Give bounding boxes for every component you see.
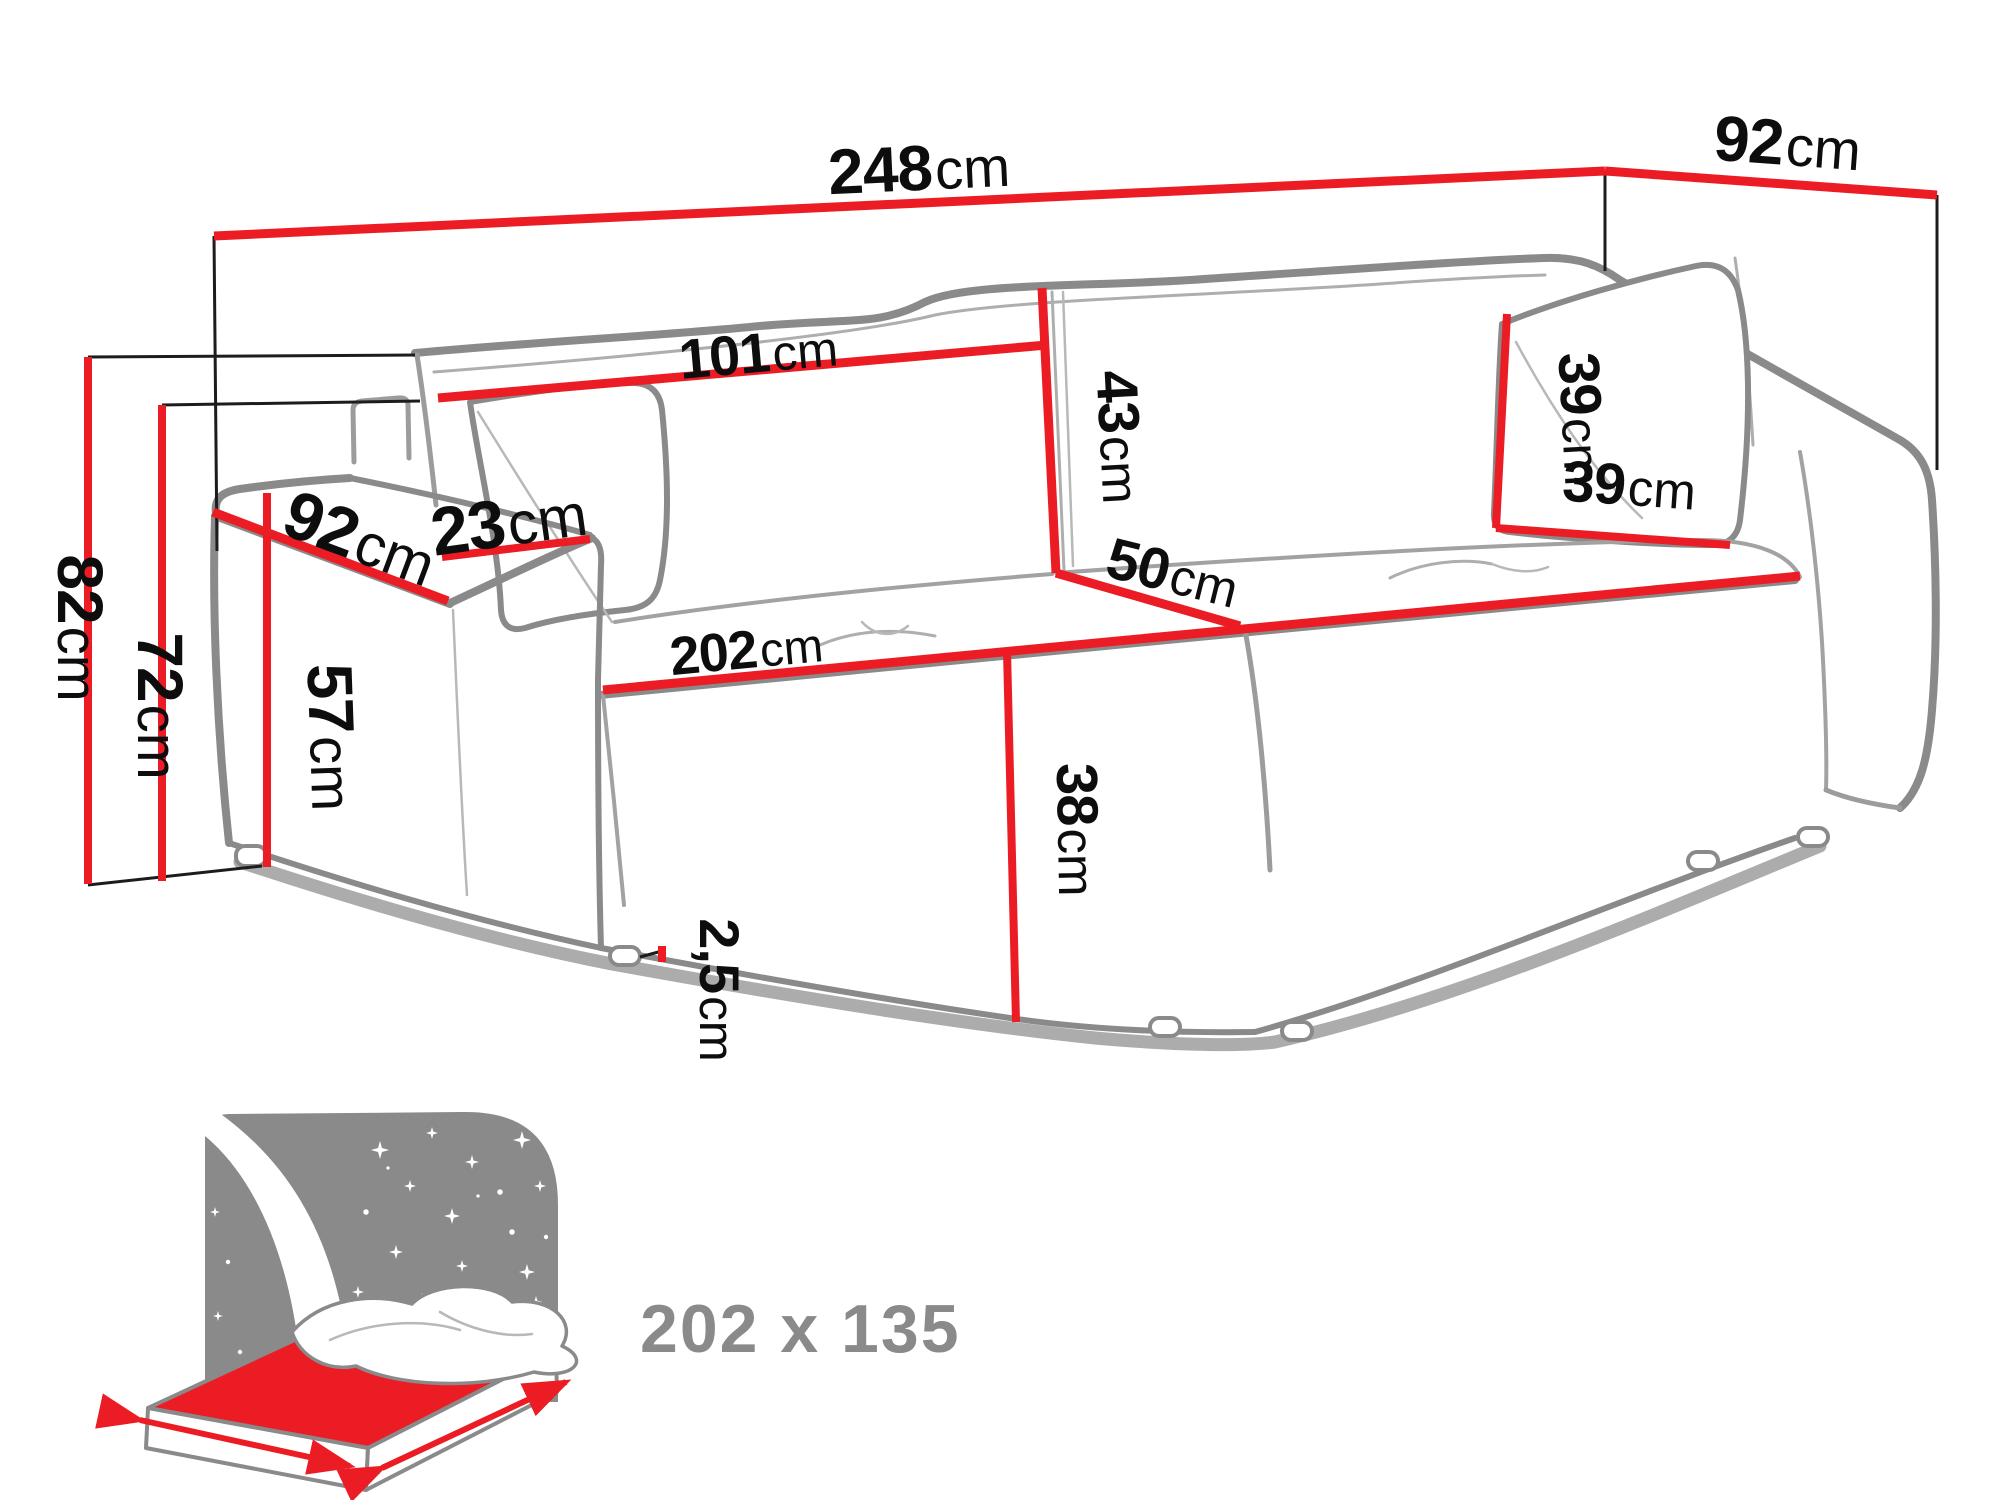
star-icon xyxy=(238,1350,242,1354)
right-arm-bottom-corner xyxy=(1826,790,1900,808)
ext-total-height-top xyxy=(88,355,415,357)
ext-height-bottom xyxy=(88,866,262,885)
star-icon xyxy=(476,1194,479,1197)
sofa-foot xyxy=(1688,852,1718,870)
sleeping-area-icon xyxy=(140,1112,577,1490)
sofa-foot xyxy=(610,947,640,965)
left-arm-bottom-edge xyxy=(229,843,601,948)
star-icon xyxy=(509,1229,515,1235)
label-frame-height: 72cm xyxy=(124,632,196,779)
label-back-cushion-width: 101cm xyxy=(676,314,840,391)
star-icon xyxy=(363,1209,369,1215)
seat-tuft-right-2 xyxy=(1492,564,1548,571)
star-icon xyxy=(386,1166,389,1169)
sleeping-area-label: 202 x 135 xyxy=(640,1291,961,1367)
label-total-height: 82cm xyxy=(44,554,116,701)
label-seat-height: 38cm xyxy=(1044,762,1111,897)
back-frame-post xyxy=(353,398,409,462)
seat-back-edge-left xyxy=(615,574,1052,622)
star-icon xyxy=(226,1260,230,1264)
sofa-foot xyxy=(236,846,266,866)
sofa-dimension-diagram: 248cm 92cm 101cm 43cm 50cm 39cm 39cm 92c… xyxy=(0,0,2000,1500)
star-icon xyxy=(544,1235,548,1239)
left-arm-front-crease xyxy=(453,610,467,895)
seat-cushion-seam-front xyxy=(1245,630,1270,870)
sofa-foot xyxy=(1150,1018,1180,1036)
label-armrest-height: 57cm xyxy=(293,662,370,812)
back-cushion-divider-2 xyxy=(1063,292,1073,566)
label-leg-height: 2,5cm xyxy=(688,918,751,1062)
label-depth-total: 92cm xyxy=(1712,102,1864,185)
label-width-total: 248cm xyxy=(826,128,1011,208)
floor-shadow xyxy=(240,846,1820,1045)
label-back-cushion-height: 43cm xyxy=(1084,369,1156,506)
sofa-foot xyxy=(1798,828,1828,846)
sofa-line-art xyxy=(214,258,1936,1045)
star-icon xyxy=(497,1189,503,1195)
ext-frame-height-top xyxy=(162,401,420,405)
seat-cushion-left-seam xyxy=(603,695,624,905)
right-arm-inner-edge xyxy=(1800,452,1826,790)
backrest-left-edge xyxy=(417,355,436,505)
left-arm-outer-vertical-edge xyxy=(214,517,229,843)
dimension-line-seat-height xyxy=(1007,651,1016,1022)
seat-tuft-right xyxy=(1390,561,1492,578)
sofa-foot xyxy=(1282,1022,1312,1040)
